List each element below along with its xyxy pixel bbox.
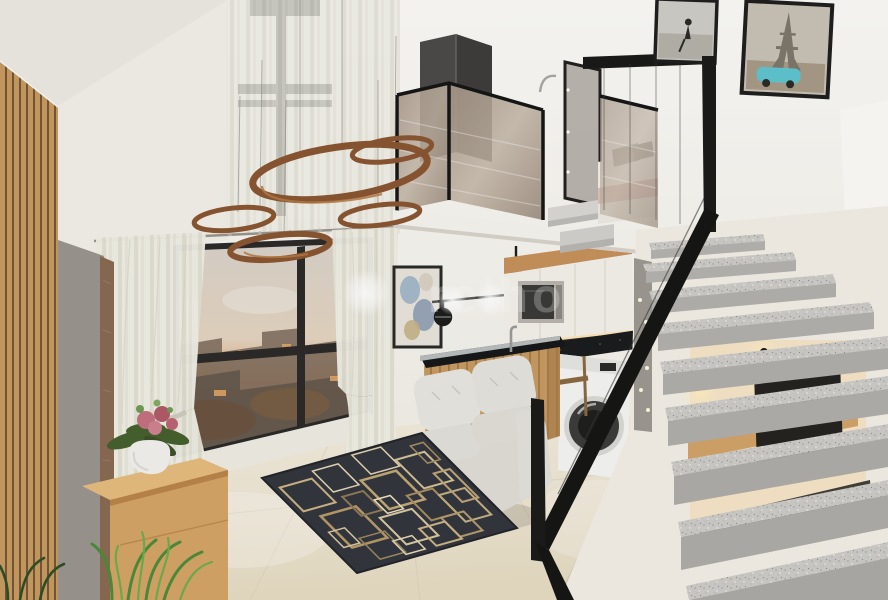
scene-canvas: relho	[0, 0, 888, 600]
vignette	[0, 0, 888, 600]
loft-apartment-render: relho	[0, 0, 888, 600]
